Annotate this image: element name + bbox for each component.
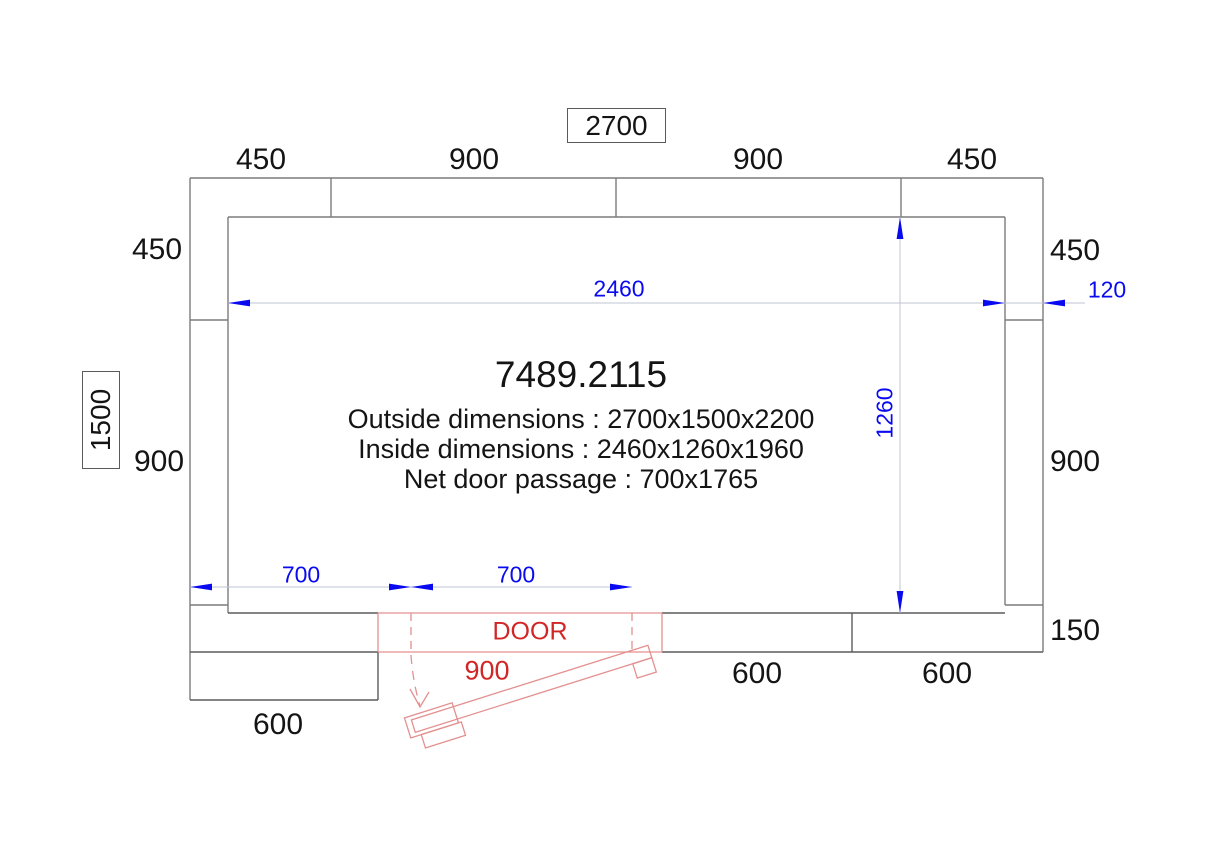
dim-door-width: 900 bbox=[464, 658, 509, 685]
dim-bottom-segment-2: 600 bbox=[922, 659, 972, 689]
title-block: 7489.2115 Outside dimensions : 2700x1500… bbox=[281, 354, 881, 494]
dim-top-segment-2: 900 bbox=[449, 145, 499, 175]
door-swing-arc bbox=[410, 655, 429, 707]
dim-bottom-left-panel: 600 bbox=[253, 710, 303, 740]
dim-top-segment-4: 450 bbox=[947, 145, 997, 175]
dim-overall-depth-label: 1500 bbox=[85, 389, 117, 451]
inside-dimensions-text: Inside dimensions : 2460x1260x1960 bbox=[281, 434, 881, 464]
dim-door-offset: 700 bbox=[282, 564, 320, 587]
dim-left-segment-2: 900 bbox=[134, 447, 184, 477]
drawing-canvas: 2700 1500 450 900 900 450 450 900 450 90… bbox=[0, 0, 1214, 858]
dim-door-passage: 700 bbox=[497, 564, 535, 587]
door-leaf bbox=[404, 642, 657, 752]
bottom-wall-panels bbox=[190, 613, 1043, 700]
dim-top-segment-3: 900 bbox=[733, 145, 783, 175]
dim-right-segment-2: 900 bbox=[1050, 447, 1100, 477]
dim-box-overall-width: 2700 bbox=[567, 108, 666, 143]
outside-dimensions-text: Outside dimensions : 2700x1500x2200 bbox=[281, 404, 881, 434]
dim-right-segment-1: 450 bbox=[1050, 236, 1100, 266]
dim-wall-thickness: 120 bbox=[1088, 279, 1126, 302]
door-label: DOOR bbox=[493, 620, 568, 645]
product-code: 7489.2115 bbox=[281, 354, 881, 396]
dim-box-overall-depth: 1500 bbox=[82, 371, 120, 469]
dim-top-segment-1: 450 bbox=[236, 145, 286, 175]
dim-left-segment-1: 450 bbox=[132, 235, 182, 265]
dim-inner-width: 2460 bbox=[593, 278, 644, 301]
dim-overall-width-label: 2700 bbox=[585, 110, 647, 142]
dim-bottom-segment-1: 600 bbox=[732, 659, 782, 689]
net-door-passage-text: Net door passage : 700x1765 bbox=[281, 464, 881, 494]
dim-right-segment-3: 150 bbox=[1050, 616, 1100, 646]
